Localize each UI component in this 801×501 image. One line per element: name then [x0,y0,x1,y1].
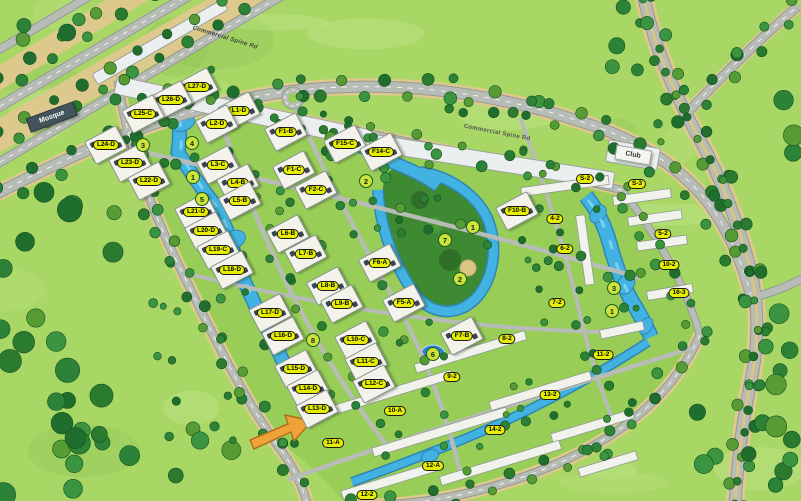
zone-pin: 3 [607,281,621,295]
zone-pin: 1 [466,220,480,234]
building-label[interactable]: L11-C [353,357,379,367]
zone-pin: 1 [186,170,200,184]
apartment-pin: L2-D [206,119,228,129]
row-label[interactable]: S-2 [576,174,594,184]
building-label[interactable]: L8-B [317,281,339,291]
building-label[interactable]: L22-D [136,176,162,186]
row-label[interactable]: 12-2 [356,490,377,500]
row-pin: 11-A [322,438,344,448]
labels-overlay: L27-D L26-D L25-C L24-D L23-D L22-D L21-… [0,0,801,501]
apartment-pin: L8-B [317,281,339,291]
row-label[interactable]: 9-2 [443,372,460,382]
row-pin: S-3 [628,179,646,189]
zone-number-marker: 1 [605,304,619,318]
zone-number-marker: 8 [306,333,320,347]
masterplan-map: L27-D L26-D L25-C L24-D L23-D L22-D L21-… [0,0,801,501]
apartment-pin: L10-C [343,335,369,345]
apartment-pin: F1-B [275,127,297,137]
row-label[interactable]: 14-2 [484,425,505,435]
building-label[interactable]: F5-A [393,298,415,308]
zone-number-marker: 5 [195,192,209,206]
mosque-label: Mosque [26,101,79,132]
zone-pin: 5 [195,192,209,206]
row-pin: 4-2 [546,214,563,224]
building-label[interactable]: L26-D [158,95,184,105]
apartment-pin: L18-D [219,265,245,275]
zone-number-marker: 3 [136,138,150,152]
building-label[interactable]: L23-D [117,158,143,168]
building-label[interactable]: F7-B [451,331,473,341]
zone-number-marker: 3 [607,281,621,295]
building-label[interactable]: L16-D [270,331,296,341]
building-label[interactable]: L25-C [130,109,156,119]
apartment-pin: F6-A [369,258,391,268]
row-pin: 13-2 [539,390,560,400]
building-label[interactable]: L6-B [277,229,299,239]
building-label[interactable]: L14-D [295,384,321,394]
apartment-pin: L11-C [353,357,379,367]
apartment-pin: L17-D [257,308,283,318]
apartment-pin: F5-A [393,298,415,308]
apartment-pin: L27-D [184,82,210,92]
building-label[interactable]: L20-D [193,226,219,236]
building-label[interactable]: L13-D [304,404,330,414]
row-pin: 9-2 [443,372,460,382]
row-label[interactable]: 10-2 [658,260,679,270]
apartment-pin: L3-C [207,160,229,170]
building-label[interactable]: L2-D [206,119,228,129]
apartment-pin: L15-D [283,364,309,374]
building-label[interactable]: F10-B [504,206,530,216]
row-pin: 12-A [422,461,444,471]
row-label[interactable]: 11-A [322,438,344,448]
row-label[interactable]: 7-2 [548,298,565,308]
zone-number-marker: 6 [426,347,440,361]
building-label[interactable]: L27-D [184,82,210,92]
apartment-pin: L5-B [229,196,251,206]
zone-pin: 6 [426,347,440,361]
zone-pin: 2 [359,174,373,188]
row-pin: 12-2 [356,490,377,500]
apartment-pin: L7-B [295,249,317,259]
apartment-pin: L20-D [193,226,219,236]
row-pin: 5-2 [654,229,671,239]
apartment-pin: L23-D [117,158,143,168]
building-label[interactable]: F2-C [305,185,327,195]
building-label[interactable]: F15-C [332,139,358,149]
building-label[interactable]: L9-B [331,299,353,309]
apartment-pin: F2-C [305,185,327,195]
building-label[interactable]: L18-D [219,265,245,275]
row-label[interactable]: 12-A [422,461,444,471]
building-label[interactable]: L17-D [257,308,283,318]
club-label: Club [614,145,652,166]
apartment-pin: L13-D [304,404,330,414]
zone-number-marker: 4 [185,136,199,150]
building-label[interactable]: L7-B [295,249,317,259]
row-pin: 10-2 [658,260,679,270]
row-label[interactable]: 10-A [384,406,406,416]
apartment-pin: F10-B [504,206,530,216]
row-label[interactable]: 5-2 [654,229,671,239]
apartment-pin: L9-B [331,299,353,309]
building-label[interactable]: F1-B [275,127,297,137]
building-label[interactable]: L15-D [283,364,309,374]
row-pin: 11-2 [593,350,614,360]
building-label[interactable]: L19-C [205,245,231,255]
zone-number-marker: 2 [453,272,467,286]
zone-pin: 3 [136,138,150,152]
apartment-pin: L14-D [295,384,321,394]
apartment-pin: F15-C [332,139,358,149]
building-label[interactable]: L24-D [93,140,119,150]
apartment-pin: L22-D [136,176,162,186]
row-label[interactable]: 6-2 [556,244,573,254]
row-pin: 16-3 [668,288,689,298]
apartment-pin: L24-D [93,140,119,150]
building-label[interactable]: F14-C [368,147,394,157]
zone-pin: 1 [605,304,619,318]
apartment-pin: L19-C [205,245,231,255]
row-pin: 14-2 [484,425,505,435]
row-label[interactable]: 16-3 [668,288,689,298]
apartment-pin: L26-D [158,95,184,105]
apartment-pin: F14-C [368,147,394,157]
building-label[interactable]: L10-C [343,335,369,345]
zone-pin: 8 [306,333,320,347]
apartment-pin: L25-C [130,109,156,119]
apartment-pin: L6-B [277,229,299,239]
road-label-strip: Commercial Spine Rd [463,124,531,143]
building-label[interactable]: L12-C [361,379,387,389]
apartment-pin: L12-C [361,379,387,389]
row-label[interactable]: S-3 [628,179,646,189]
row-pin: 7-2 [548,298,565,308]
building-label[interactable]: L3-C [207,160,229,170]
zone-pin: 4 [185,136,199,150]
road-label-top: Commercial Spine Rd [192,25,259,51]
zone-number-marker: 1 [466,220,480,234]
row-pin: 6-2 [556,244,573,254]
building-label[interactable]: L5-B [229,196,251,206]
row-label[interactable]: 11-2 [593,350,614,360]
row-pin: S-2 [576,174,594,184]
apartment-pin: L16-D [270,331,296,341]
zone-number-marker: 7 [438,233,452,247]
zone-pin: 7 [438,233,452,247]
row-pin: 10-A [384,406,406,416]
row-pin: 8-2 [498,334,515,344]
zone-number-marker: 2 [359,174,373,188]
apartment-pin: F7-B [451,331,473,341]
zone-pin: 2 [453,272,467,286]
row-label[interactable]: 13-2 [539,390,560,400]
row-label[interactable]: 8-2 [498,334,515,344]
building-label[interactable]: F1-C [283,165,305,175]
building-label[interactable]: F6-A [369,258,391,268]
zone-number-marker: 1 [186,170,200,184]
row-label[interactable]: 4-2 [546,214,563,224]
apartment-pin: F1-C [283,165,305,175]
